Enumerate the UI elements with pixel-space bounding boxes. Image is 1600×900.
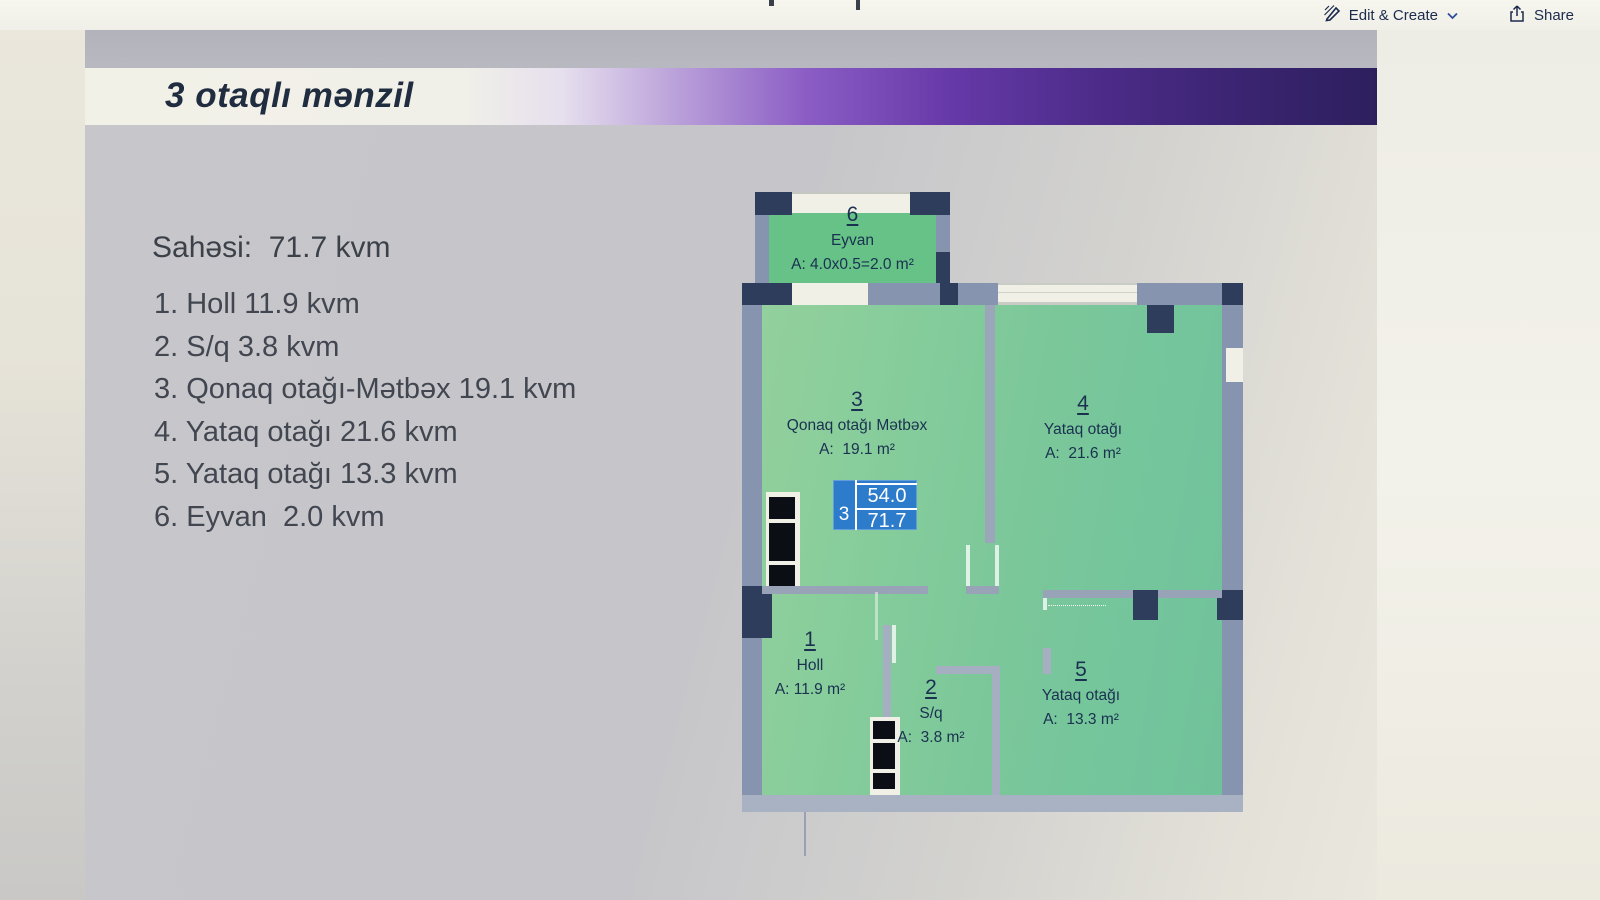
room-number: 6 xyxy=(755,203,950,227)
edit-create-label: Edit & Create xyxy=(1349,7,1438,24)
list-item: 5. Yataq otağı 13.3 kvm xyxy=(154,453,576,496)
room-name: Qonaq otağı Mətbəx xyxy=(757,417,957,435)
page-title: 3 otaqlı mənzil xyxy=(165,76,414,116)
room-label-eyvan: 6 Eyvan A: 4.0x0.5=2.0 m² xyxy=(755,203,950,274)
room-number: 5 xyxy=(982,658,1180,682)
pillar xyxy=(742,283,792,305)
cropped-icon-mark xyxy=(769,0,774,6)
floor-plan: 6 Eyvan A: 4.0x0.5=2.0 m² 3 Qonaq otağı … xyxy=(742,192,1243,872)
room-name: Eyvan xyxy=(755,232,950,250)
badge-fraction: 54.0 71.7 xyxy=(857,480,917,530)
app-toolbar: Edit & Create Share xyxy=(0,0,1600,30)
leader-line xyxy=(804,812,806,856)
list-item: 4. Yataq otağı 21.6 kvm xyxy=(154,411,576,454)
shaft-box xyxy=(769,497,795,519)
room-area: A: 3.8 m² xyxy=(892,729,970,747)
window xyxy=(1226,348,1243,382)
door-swing xyxy=(1048,605,1106,606)
pillar xyxy=(940,283,958,305)
wall xyxy=(742,305,762,795)
balcony-door-opening xyxy=(792,283,868,305)
door-jamb xyxy=(966,545,970,588)
room-number: 4 xyxy=(982,392,1184,416)
edit-create-button[interactable]: Edit & Create xyxy=(1323,4,1458,27)
badge-floor-number: 3 xyxy=(833,480,857,530)
room-list: 1. Holl 11.9 kvm 2. S/q 3.8 kvm 3. Qonaq… xyxy=(154,283,576,538)
wall xyxy=(742,795,1243,812)
room-name: Yataq otağı xyxy=(982,421,1184,439)
wall xyxy=(762,586,928,594)
room-number: 2 xyxy=(892,676,970,700)
badge-area-top: 54.0 xyxy=(857,483,917,510)
room-label-yataq-4: 4 Yataq otağı A: 21.6 m² xyxy=(982,392,1184,463)
pillar xyxy=(1222,283,1243,305)
list-item: 6. Eyvan 2.0 kvm xyxy=(154,496,576,539)
shaft-box xyxy=(769,523,795,561)
share-label: Share xyxy=(1534,7,1574,24)
pillar xyxy=(1147,305,1174,333)
room-number: 3 xyxy=(757,388,957,412)
room-label-sq: 2 S/q A: 3.8 m² xyxy=(892,676,970,747)
total-area-text: Sahəsi: 71.7 kvm xyxy=(152,231,390,265)
room-area: A: 4.0x0.5=2.0 m² xyxy=(755,256,950,274)
room-label-qonaq: 3 Qonaq otağı Mətbəx A: 19.1 m² xyxy=(757,388,957,459)
pillar xyxy=(1133,590,1158,620)
room-name: Holl xyxy=(750,657,870,675)
wall xyxy=(868,283,940,305)
photo-right-bright-area xyxy=(1377,30,1600,900)
badge-area-bottom: 71.7 xyxy=(857,510,917,533)
wall xyxy=(966,586,999,594)
door-jamb xyxy=(995,545,999,588)
share-button[interactable]: Share xyxy=(1508,4,1574,27)
list-item: 2. S/q 3.8 kvm xyxy=(154,326,576,369)
door-jamb xyxy=(892,625,896,663)
cropped-icon-mark xyxy=(856,0,860,10)
edit-create-icon xyxy=(1323,4,1342,27)
room-area: A: 13.3 m² xyxy=(982,711,1180,729)
wall xyxy=(958,283,998,305)
list-item: 1. Holl 11.9 kvm xyxy=(154,283,576,326)
room-name: S/q xyxy=(892,705,970,723)
glare-mark xyxy=(875,592,878,640)
room-area: A: 21.6 m² xyxy=(982,445,1184,463)
shaft-box xyxy=(769,565,795,587)
door-jamb xyxy=(1043,598,1047,610)
chevron-down-icon xyxy=(1447,7,1458,24)
slide-top-gray-band xyxy=(85,30,1377,68)
room-area: A: 19.1 m² xyxy=(757,441,957,459)
room-label-yataq-5: 5 Yataq otağı A: 13.3 m² xyxy=(982,658,1180,729)
room-number: 1 xyxy=(750,628,870,652)
photo-left-margin xyxy=(0,0,85,900)
room-label-holl: 1 Holl A: 11.9 m² xyxy=(750,628,870,699)
room-area: A: 11.9 m² xyxy=(750,681,870,699)
wall xyxy=(1137,283,1222,305)
list-item: 3. Qonaq otağı-Mətbəx 19.1 kvm xyxy=(154,368,576,411)
room-name: Yataq otağı xyxy=(982,687,1180,705)
share-icon xyxy=(1508,4,1527,27)
shaft-box xyxy=(873,773,895,789)
floor-area-badge: 3 54.0 71.7 xyxy=(833,480,917,530)
window xyxy=(998,283,1137,305)
